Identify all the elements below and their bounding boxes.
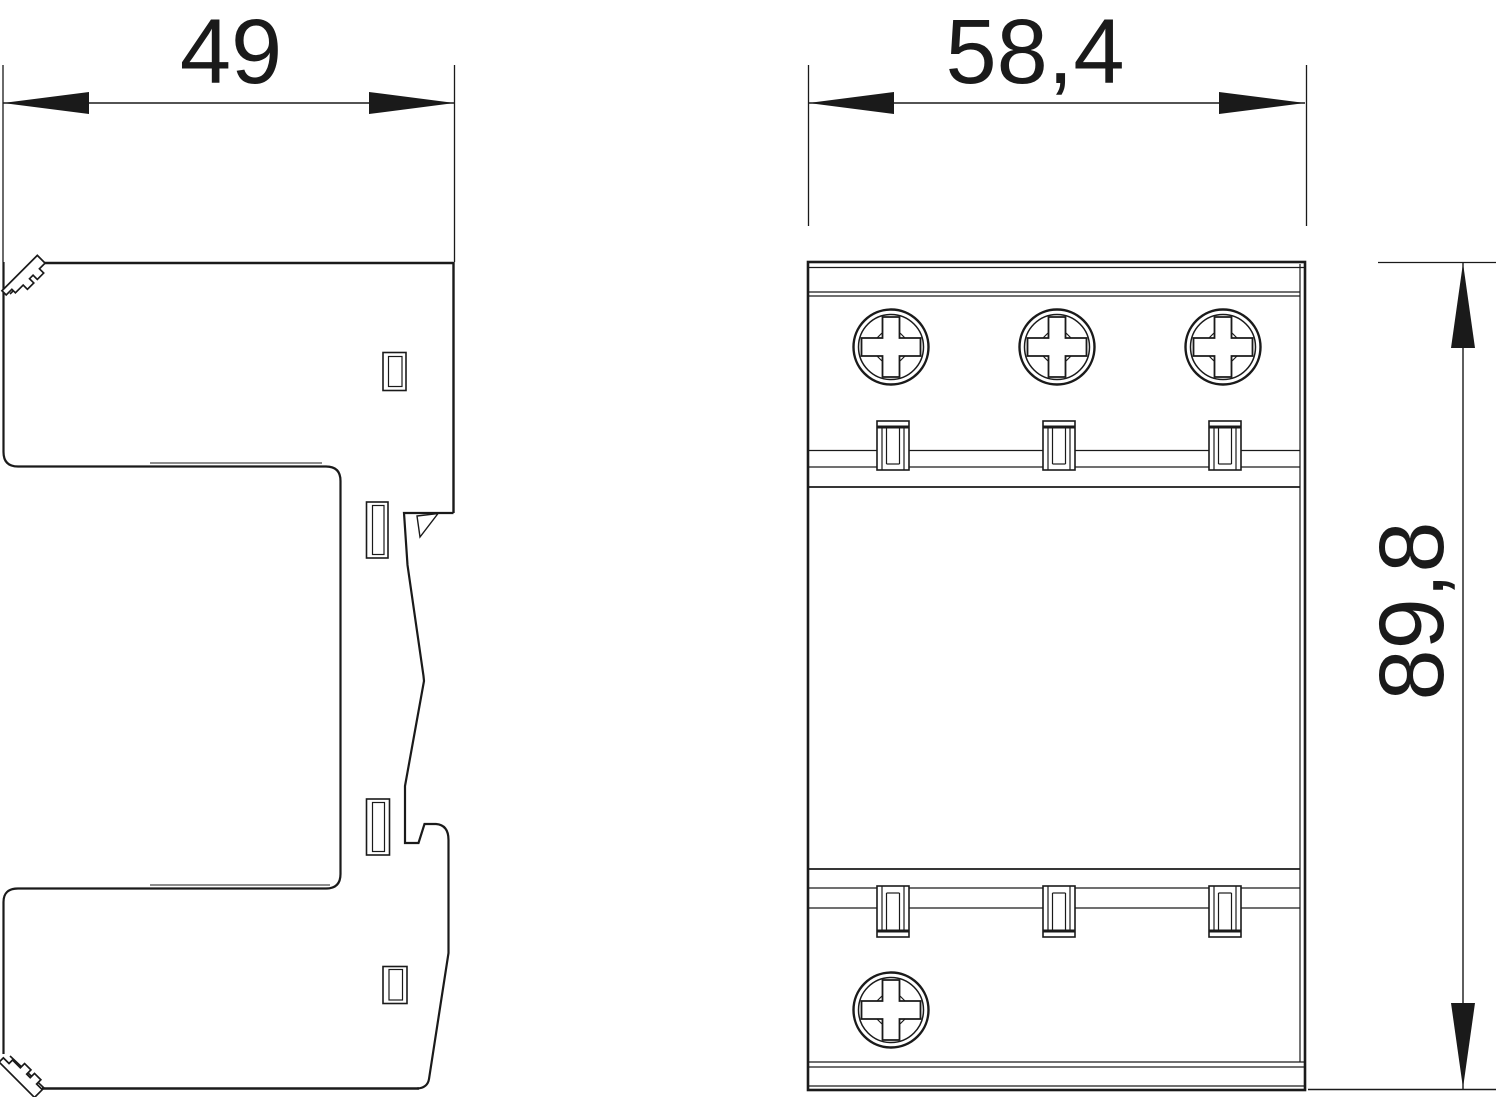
dimension-height-label: 89,8 [1366,491,1458,731]
arrow-right-icon [1219,92,1305,114]
latch-tab-bottom-1 [877,886,909,937]
arrow-down-icon [1451,1003,1475,1088]
side-view [0,65,454,1097]
side-window-4 [383,967,407,1004]
arrow-left-icon [809,92,895,114]
dimension-width-label: 58,4 [915,6,1155,98]
latch-tab-bottom-3 [1209,886,1241,937]
latch-tab-top-1 [877,421,909,470]
dimension-drawing-canvas: 49 58,4 89,8 [0,0,1500,1097]
dimension-depth-label: 49 [131,6,331,98]
snap-notch-triangle [417,514,438,538]
terminal-screw-icon-3 [1186,310,1261,385]
side-window-3 [367,799,390,855]
technical-drawing [0,0,1500,1097]
latch-tab-bottom-2 [1043,886,1075,937]
side-window-1 [383,353,406,391]
front-body-outline [808,262,1305,1090]
terminal-screw-icon-1 [854,310,929,385]
side-window-2 [367,502,389,558]
arrow-right-icon [369,92,455,114]
terminal-screw-icon-2 [1020,310,1095,385]
arrow-up-icon [1451,263,1475,348]
arrow-left-icon [3,92,89,114]
latch-tab-top-2 [1043,421,1075,470]
terminal-screw-icon-bottom [854,973,929,1048]
din-clip-bottom-icon [0,1050,47,1097]
latch-tab-top-3 [1209,421,1241,470]
din-clip-top-icon [2,255,49,302]
